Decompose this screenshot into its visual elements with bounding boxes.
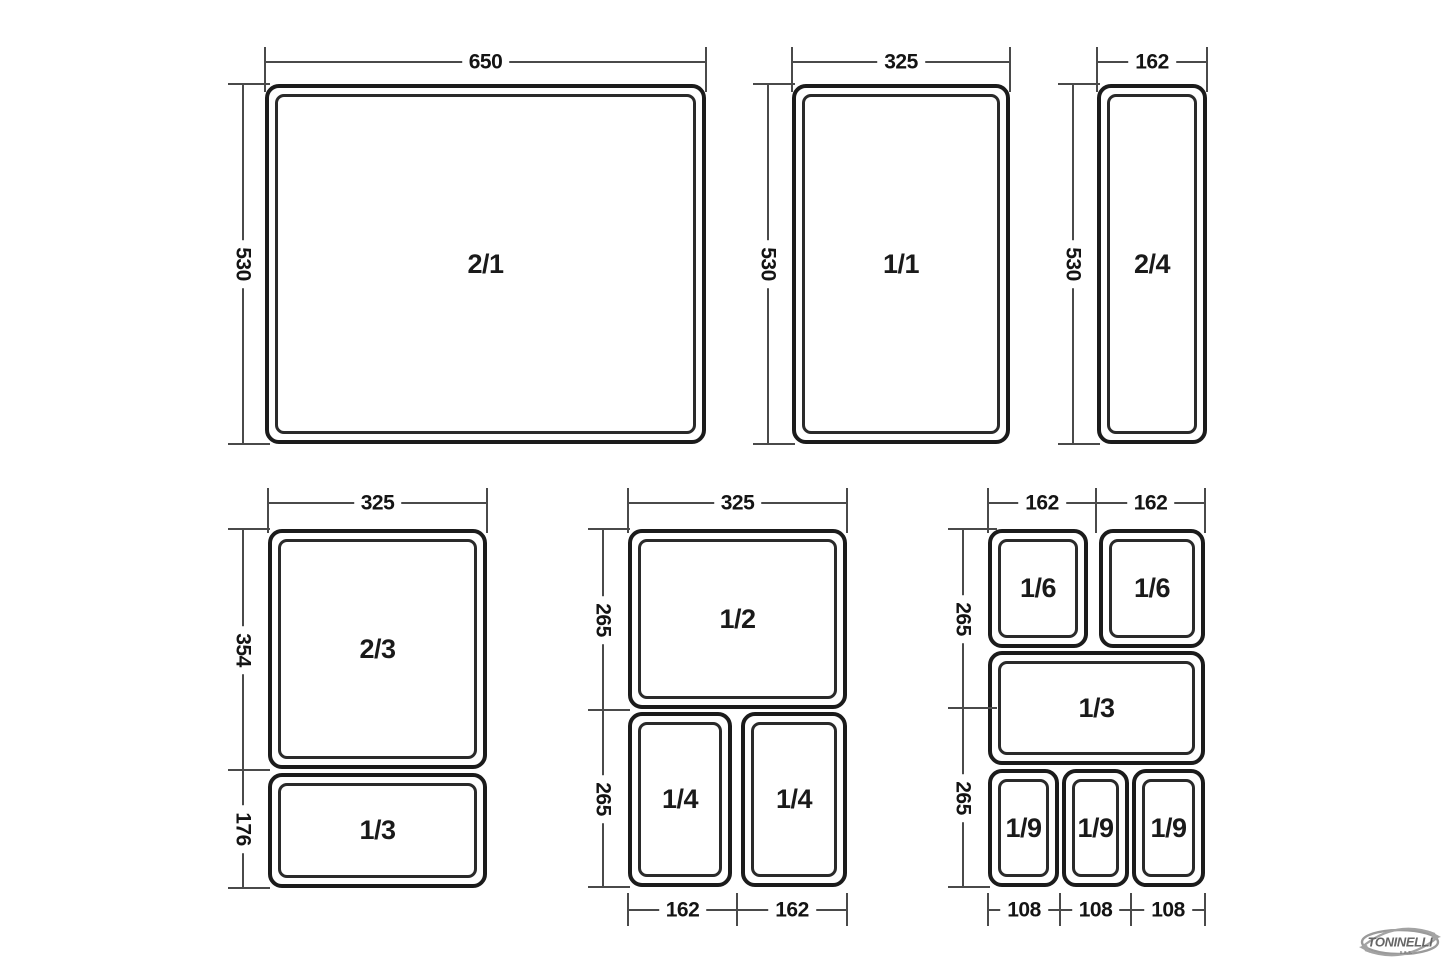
pan-box-inner: 1/4 xyxy=(638,722,722,877)
pan-box-1-4: 1/4 xyxy=(741,712,847,887)
pan-box-inner: 1/3 xyxy=(998,661,1195,755)
dim-tick xyxy=(486,488,488,533)
dim-tick xyxy=(948,886,990,888)
dim-tick xyxy=(267,488,269,533)
pan-box-inner: 1/9 xyxy=(998,779,1049,877)
pan-box-1-6: 1/6 xyxy=(1099,529,1205,648)
pan-box-1-3: 1/3 xyxy=(988,651,1205,765)
dim-tick xyxy=(705,47,707,92)
dim-tick xyxy=(1009,47,1011,92)
pan-size-label: 1/4 xyxy=(662,784,698,815)
dim-tick xyxy=(987,893,989,926)
dim-tick xyxy=(753,83,795,85)
pan-size-label: 1/9 xyxy=(1005,813,1041,844)
pan-size-label: 1/3 xyxy=(359,815,395,846)
dim-value: 530 xyxy=(1062,240,1085,288)
pan-box-inner: 1/2 xyxy=(638,539,837,699)
dim-tick xyxy=(264,47,266,92)
dim-tick xyxy=(1058,83,1100,85)
dim-tick xyxy=(987,488,989,533)
pan-box-1-9: 1/9 xyxy=(1062,769,1129,887)
dim-tick xyxy=(1204,488,1206,533)
dim-tick xyxy=(228,443,270,445)
pan-box-inner: 1/9 xyxy=(1142,779,1195,877)
pan-box-inner: 2/1 xyxy=(275,94,696,434)
dim-tick xyxy=(228,887,270,889)
dim-tick xyxy=(736,893,738,926)
pan-size-label: 1/3 xyxy=(1078,693,1114,724)
dim-value: 162 xyxy=(1128,51,1176,74)
dim-value: 265 xyxy=(592,775,615,823)
dim-value: 354 xyxy=(232,626,255,674)
pan-size-label: 1/9 xyxy=(1077,813,1113,844)
dim-value: 108 xyxy=(1072,899,1120,922)
dim-tick xyxy=(588,886,630,888)
pan-box-1-4: 1/4 xyxy=(628,712,732,887)
dim-tick xyxy=(1059,893,1061,926)
pan-box-1-9: 1/9 xyxy=(988,769,1059,887)
dim-value: 650 xyxy=(462,51,510,74)
dim-tick xyxy=(228,528,270,530)
dim-value: 325 xyxy=(877,51,925,74)
pan-size-label: 2/3 xyxy=(359,634,395,665)
dim-tick xyxy=(948,707,990,709)
dim-tick xyxy=(588,709,630,711)
dim-tick xyxy=(588,528,630,530)
dim-tick xyxy=(228,83,270,85)
dim-value: 162 xyxy=(1018,492,1066,515)
dim-value: 108 xyxy=(1000,899,1048,922)
gastronorm-size-diagram: 2/16505301/13255302/41625302/31/33253541… xyxy=(0,0,1445,963)
logo-text: TONINELLI xyxy=(1368,935,1434,950)
pan-box-1-9: 1/9 xyxy=(1132,769,1205,887)
pan-size-label: 2/1 xyxy=(467,249,503,280)
pan-size-label: 2/4 xyxy=(1134,249,1170,280)
dim-value: 530 xyxy=(757,240,780,288)
pan-box-1-6: 1/6 xyxy=(988,529,1088,648)
logo-subtext: s.a.s. xyxy=(1400,950,1413,956)
pan-box-1-1: 1/1 xyxy=(792,84,1010,444)
dim-value: 325 xyxy=(714,492,762,515)
dim-tick xyxy=(627,488,629,533)
dim-tick xyxy=(1130,893,1132,926)
dim-tick xyxy=(846,893,848,926)
dim-tick xyxy=(846,488,848,533)
dim-value: 162 xyxy=(659,899,707,922)
pan-box-2-1: 2/1 xyxy=(265,84,706,444)
dim-tick xyxy=(1095,488,1097,533)
pan-size-label: 1/9 xyxy=(1150,813,1186,844)
dim-value: 265 xyxy=(592,596,615,644)
dim-tick xyxy=(1204,893,1206,926)
dim-tick xyxy=(228,769,270,771)
pan-box-inner: 1/1 xyxy=(802,94,1000,434)
dim-value: 325 xyxy=(354,492,402,515)
pan-box-inner: 1/9 xyxy=(1072,779,1119,877)
pan-box-inner: 2/4 xyxy=(1107,94,1197,434)
dim-tick xyxy=(1206,47,1208,92)
pan-size-label: 1/6 xyxy=(1020,573,1056,604)
dim-value: 162 xyxy=(768,899,816,922)
dim-tick xyxy=(753,443,795,445)
dim-tick xyxy=(627,893,629,926)
pan-size-label: 1/6 xyxy=(1134,573,1170,604)
pan-box-inner: 1/3 xyxy=(278,783,477,878)
pan-box-inner: 1/6 xyxy=(1109,539,1195,638)
pan-box-inner: 2/3 xyxy=(278,539,477,759)
dim-value: 265 xyxy=(952,774,975,822)
toninelli-logo: TONINELLI s.a.s. xyxy=(1352,918,1444,963)
pan-size-label: 1/2 xyxy=(719,604,755,635)
dim-value: 108 xyxy=(1144,899,1192,922)
dim-value: 162 xyxy=(1127,492,1175,515)
pan-size-label: 1/4 xyxy=(776,784,812,815)
dim-value: 530 xyxy=(232,240,255,288)
dim-value: 265 xyxy=(952,595,975,643)
dim-value: 176 xyxy=(232,805,255,853)
dim-tick xyxy=(948,528,997,530)
pan-box-2-4: 2/4 xyxy=(1097,84,1207,444)
pan-size-label: 1/1 xyxy=(883,249,919,280)
dim-tick xyxy=(791,47,793,92)
pan-box-inner: 1/6 xyxy=(998,539,1078,638)
pan-box-1-2: 1/2 xyxy=(628,529,847,709)
dim-tick xyxy=(1096,47,1098,92)
dim-tick xyxy=(1058,443,1100,445)
pan-box-inner: 1/4 xyxy=(751,722,837,877)
pan-box-2-3: 2/3 xyxy=(268,529,487,769)
pan-box-1-3: 1/3 xyxy=(268,773,487,888)
